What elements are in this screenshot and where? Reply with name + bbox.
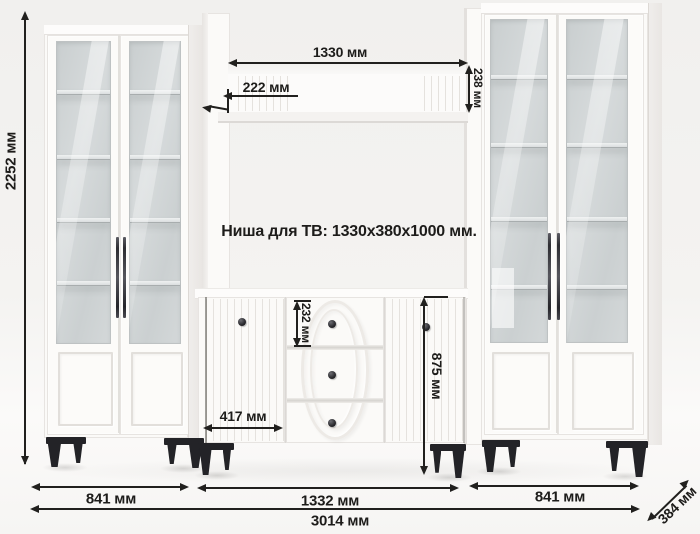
right-cabinet-handle-1 [548, 233, 551, 320]
chest-leg [430, 444, 466, 478]
glass-shelf [567, 143, 627, 147]
arrowhead [30, 505, 39, 513]
glass-shelf [130, 218, 180, 222]
glass-shelf [567, 217, 627, 221]
dim-total-width-label: 3014 мм [311, 513, 369, 530]
left-cabinet-handle-1 [116, 237, 119, 318]
arrowhead [420, 297, 428, 306]
dim-drawer-height-line [296, 307, 298, 340]
dim-chest-height-label: 875 мм [429, 353, 445, 400]
floor-shadow [50, 458, 650, 484]
arrowhead [228, 59, 237, 67]
glass-shelf [57, 90, 110, 94]
chest-drawer-knob-2 [328, 371, 336, 379]
arrowhead [21, 11, 29, 20]
dim-shelf-depth-label: 222 мм [243, 79, 290, 95]
chest-left-door-knob [238, 318, 246, 326]
cabinet-leg [46, 437, 86, 467]
chest-divider-left [284, 297, 287, 443]
dim-shelf-width-line [237, 62, 459, 64]
left-cabinet-glass-2 [129, 41, 181, 344]
dim-center-width-line [205, 487, 450, 489]
dim-center-width-label: 1332 мм [301, 493, 359, 510]
arrowhead [197, 484, 206, 492]
right-cabinet-glass-2 [566, 19, 628, 343]
left-cabinet-bottom-panel-2 [131, 352, 183, 426]
glass-shelf [567, 285, 627, 289]
chest-drawer-gap-2 [287, 398, 383, 403]
glass-shelf [567, 75, 627, 79]
glass-shelf [491, 75, 547, 79]
arrowhead [21, 456, 29, 465]
dim-total-height-label: 2252 мм [3, 132, 20, 190]
right-cabinet-bottom-panel-1 [492, 352, 550, 430]
glass-shelf [491, 143, 547, 147]
left-cabinet-glass-1 [56, 41, 111, 344]
glass-reflection [492, 268, 514, 328]
dim-chest-height-line [423, 304, 425, 468]
right-cabinet-handle-2 [557, 233, 560, 320]
bridge-shelf-bottom-board [218, 112, 468, 123]
chest-left-door-hinge-gap [205, 297, 207, 443]
dim-right-width-line [477, 485, 630, 487]
arrowhead [469, 482, 478, 490]
left-cabinet-door-gap [118, 35, 120, 433]
cabinet-leg [606, 441, 648, 477]
tv-niche-note: Ниша для ТВ: 1330x380x1000 мм. [221, 223, 477, 241]
dim-shelf-depth-line [232, 95, 298, 97]
arrowhead [203, 424, 212, 432]
dim-total-height-line [24, 16, 26, 464]
dim-left-width-label: 841 мм [86, 491, 136, 508]
arrowhead [450, 484, 459, 492]
right-cabinet-door-gap [556, 14, 558, 433]
right-cabinet-side-panel [648, 3, 662, 445]
left-cabinet-handle-2 [123, 237, 126, 318]
dim-shelf-width-label: 1330 мм [313, 44, 367, 60]
glass-shelf [57, 155, 110, 159]
dim-shelf-height-line [468, 73, 470, 105]
left-cabinet-top [44, 25, 188, 35]
arrowhead [274, 424, 283, 432]
dim-left-width-line [39, 486, 180, 488]
chest-right-door [386, 299, 464, 441]
dim-depth-label: 384 мм [655, 483, 700, 527]
arrowhead [201, 103, 211, 112]
chest-right-door-gap [463, 297, 465, 443]
dim-drawer-height-label: 232 мм [299, 303, 313, 343]
dim-chest-height-tick [424, 296, 448, 298]
chest-drawer-knob-1 [328, 320, 336, 328]
glass-shelf [130, 155, 180, 159]
arrowhead [420, 466, 428, 475]
left-cabinet-bottom-panel-1 [58, 352, 113, 426]
dim-drawer-height-tick-bottom [294, 345, 311, 347]
glass-shelf [57, 218, 110, 222]
glass-shelf [130, 90, 180, 94]
arrowhead [630, 482, 639, 490]
glass-shelf [491, 217, 547, 221]
dim-total-width-line [38, 508, 631, 510]
dim-right-width-label: 841 мм [535, 489, 585, 506]
cabinet-leg [482, 440, 520, 472]
wall-unit-dimension-diagram: 2252 мм 1330 мм 222 мм 238 мм Ниша для Т… [0, 0, 700, 534]
tv-niche-left-panel-edge [202, 13, 208, 291]
arrowhead [180, 483, 189, 491]
arrowhead [31, 483, 40, 491]
dim-shelf-height-label: 238 мм [471, 68, 485, 108]
glass-shelf [57, 281, 110, 285]
chest-drawer-knob-3 [328, 419, 336, 427]
dim-door-width-line [211, 427, 275, 429]
chest-leg [198, 443, 234, 475]
glass-shelf [130, 281, 180, 285]
right-cabinet-top [481, 3, 648, 14]
dim-door-width-label: 417 мм [220, 408, 267, 424]
bridge-shelf-grooves-right [418, 76, 464, 111]
arrowhead [631, 505, 640, 513]
right-cabinet-bottom-panel-2 [572, 352, 634, 430]
right-cabinet-glass-1 [490, 19, 548, 343]
dim-drawer-height-tick-top [294, 300, 311, 302]
